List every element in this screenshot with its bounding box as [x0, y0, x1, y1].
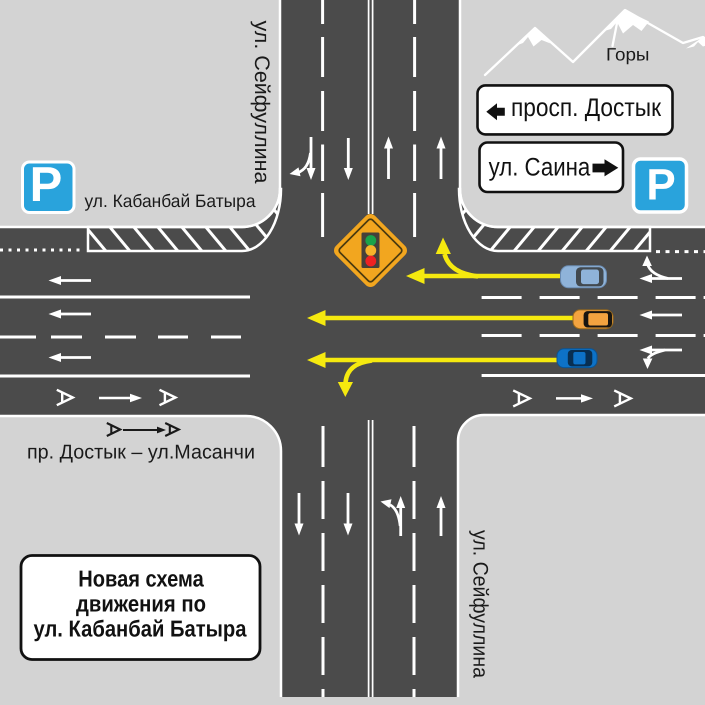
- svg-text:P: P: [646, 161, 675, 210]
- svg-text:Горы: Горы: [606, 45, 650, 65]
- svg-text:ул. Кабанбай Батыра: ул. Кабанбай Батыра: [34, 616, 247, 642]
- svg-text:движения по: движения по: [76, 591, 206, 617]
- svg-text:Новая схема: Новая схема: [78, 566, 204, 592]
- svg-text:пр. Достык – ул.Масанчи: пр. Достык – ул.Масанчи: [27, 442, 255, 464]
- svg-text:просп. Достык: просп. Достык: [511, 94, 662, 122]
- svg-text:ул. Сейфуллина: ул. Сейфуллина: [469, 530, 492, 678]
- svg-text:ул. Сейфуллина: ул. Сейфуллина: [250, 21, 273, 184]
- svg-text:P: P: [30, 158, 63, 212]
- svg-text:ул. Саина: ул. Саина: [489, 153, 591, 181]
- svg-text:ул. Кабанбай Батыра: ул. Кабанбай Батыра: [85, 191, 257, 211]
